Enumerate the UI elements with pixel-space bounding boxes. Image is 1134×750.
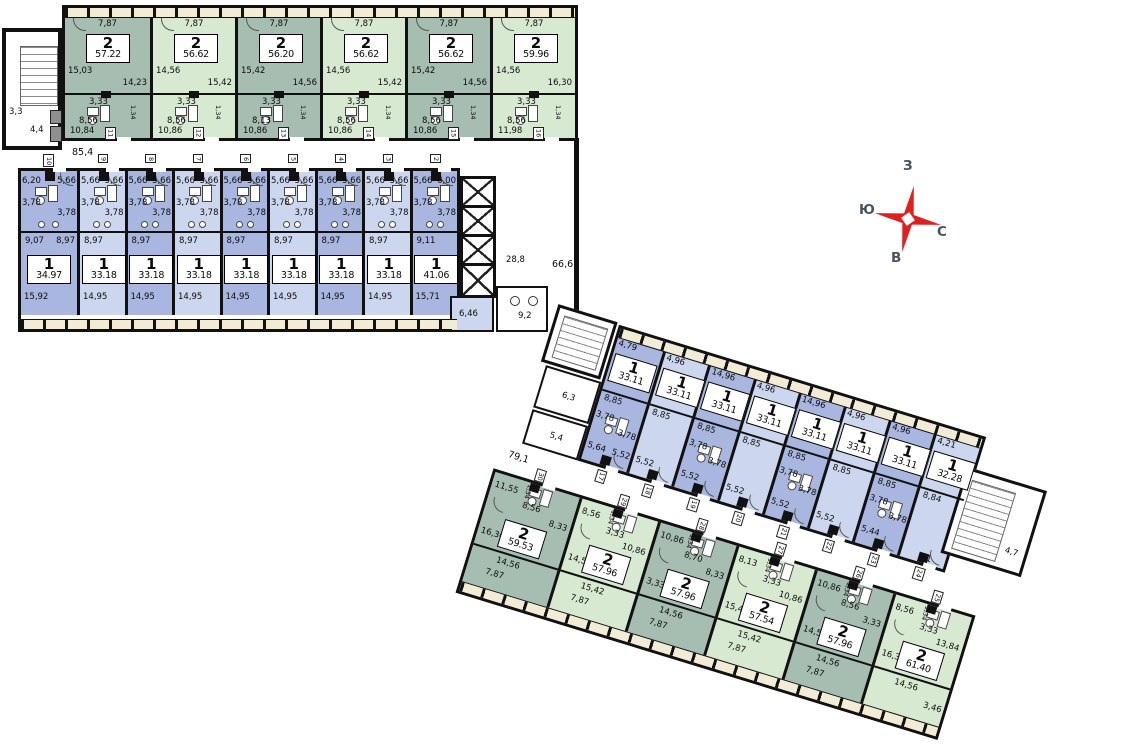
dim-label: 8,97 [132, 237, 151, 246]
apartment-number-tag: 28 [695, 517, 709, 533]
dim-label: 15,42 [241, 67, 265, 76]
apartment-unit: 95,665,663,783,788,97133.1814,95 [77, 171, 125, 315]
door-gap [438, 167, 451, 172]
elevator-shafts [460, 176, 496, 298]
apartment-unit: 7,87259.9614,5616,303,331,348,5611,9816 [490, 17, 575, 138]
dim-label: 10,86 [328, 127, 352, 136]
window-strip [65, 8, 575, 18]
dim-label: 15,92 [24, 293, 48, 302]
door-gap [201, 167, 214, 172]
dim-label: 14,56 [293, 79, 317, 88]
dim-label: 7,87 [804, 666, 825, 680]
dim-label: 5,66 [129, 177, 148, 186]
dim-label: 10,86 [243, 127, 267, 136]
dim-label: 14,56 [156, 67, 180, 76]
dim-label: 11,98 [498, 127, 522, 136]
elevator-icon [463, 266, 493, 295]
dim-label: 14,56 [893, 678, 919, 693]
tub-icon [392, 185, 402, 202]
chute-block [50, 126, 62, 142]
dim-label: 5,66 [105, 177, 124, 186]
wc-dim-label: 1,34 [470, 105, 477, 119]
door-gap [296, 167, 309, 172]
dim-label: 5,66 [152, 177, 171, 186]
room-count-label: 2 [515, 36, 557, 50]
sink-icon [427, 187, 439, 196]
corridor-area-label: 85,4 [72, 148, 93, 158]
room-count-label: 1 [28, 257, 70, 271]
apartment-number-tag: 15 [448, 127, 459, 140]
column [342, 221, 349, 228]
sink-icon [515, 107, 527, 116]
apartment-number-tag: 19 [686, 497, 700, 513]
dim-label: 7,87 [153, 20, 235, 29]
corridor-diag-label: 79,1 [507, 450, 530, 465]
apartment-unit: 55,665,663,783,788,97133.1814,95 [267, 171, 315, 315]
hall-area-label: 66,6 [552, 260, 573, 270]
dim-label: 11,55 [494, 481, 520, 496]
door-gap [106, 167, 119, 172]
column [510, 296, 520, 306]
interior-wall [21, 231, 77, 233]
dim-label: 5,66 [366, 177, 385, 186]
dim-label: 14,56 [658, 606, 684, 621]
apartment-area-box: 141.06 [414, 255, 458, 284]
apartment-number-tag: 10 [43, 154, 54, 167]
area-value-label: 57.22 [87, 50, 129, 60]
dim-label: 3,33 [89, 98, 108, 107]
apartment-number-tag: 3 [383, 154, 394, 163]
dim-label: 3,33 [861, 616, 882, 630]
column [247, 221, 254, 228]
apartment-number-tag: 11 [105, 127, 116, 140]
dim-label: 3,33 [517, 98, 536, 107]
stair-room-label: 4,7 [1004, 547, 1019, 559]
dim-label: 8,56 [337, 117, 356, 126]
apartment-number-tag: 30 [533, 468, 547, 484]
dim-label: 8,56 [167, 117, 186, 126]
door-arc-icon [656, 547, 672, 563]
apartment-number-tag: 29 [617, 494, 631, 510]
column [294, 221, 301, 228]
tub-icon [188, 105, 198, 122]
apartment-area-box: 133.18 [367, 255, 411, 284]
area-value-label: 33.18 [83, 271, 125, 281]
stairwell-left: 3,3 4,4 [2, 28, 62, 150]
dim-label: 5,52 [634, 456, 655, 470]
dim-label: 3,78 [778, 466, 799, 480]
dim-label: 8,56 [422, 117, 441, 126]
apartment-number-tag: 12 [193, 127, 204, 140]
apartment-unit: 45,665,663,783,788,97133.1814,95 [315, 171, 363, 315]
wc-dim-label: 1,34 [300, 105, 307, 119]
elevator-icon [463, 237, 493, 266]
apartment-number-tag: 7 [193, 154, 204, 163]
sink-icon [87, 107, 99, 116]
chute-block [50, 110, 62, 124]
area-value-label: 56.20 [260, 50, 302, 60]
dim-label: 5,66 [390, 177, 409, 186]
tub-icon [443, 105, 453, 122]
apartment-number-tag: 17 [594, 469, 608, 485]
sink-icon [332, 187, 344, 196]
apartment-area-box: 133.11 [745, 395, 796, 436]
apartment-number-tag: 5 [288, 154, 299, 163]
lobby-area-label: 6,46 [459, 310, 478, 319]
dim-label: 15,71 [416, 293, 440, 302]
dim-label: 8,13 [737, 555, 758, 569]
dim-label: 3,33 [604, 527, 625, 541]
area-value-label: 33.18 [130, 271, 172, 281]
room-count-label: 1 [368, 257, 410, 271]
entry-area-label: 9,2 [518, 312, 532, 321]
sink-icon [142, 187, 154, 196]
dim-label: 8,56 [581, 507, 602, 521]
room-count-label: 1 [178, 257, 220, 271]
dim-label: 14,56 [496, 67, 520, 76]
tub-icon [358, 105, 368, 122]
room-count-label: 2 [260, 36, 302, 50]
dim-label: 6,00 [437, 177, 456, 186]
dim-label: 8,97 [274, 237, 293, 246]
apartment-number-tag: 21 [776, 524, 790, 540]
dim-label: 10,84 [70, 127, 94, 136]
dim-label: 14,56 [815, 654, 841, 669]
dim-label: 14,95 [178, 293, 202, 302]
compass-east: В [891, 250, 901, 266]
sink-icon [237, 187, 249, 196]
dim-label: 15,42 [378, 79, 402, 88]
door-gap [290, 137, 304, 142]
apartment-number-tag: 2 [430, 154, 441, 163]
sink-icon [175, 107, 187, 116]
dim-label: 3,33 [177, 98, 196, 107]
dim-label: 3,78 [366, 199, 385, 208]
dim-label: 3,78 [176, 199, 195, 208]
dim-label: 8,56 [79, 117, 98, 126]
apartment-number-tag: 20 [731, 510, 745, 526]
dim-label: 3,78 [295, 209, 314, 218]
area-value-label: 41.06 [415, 271, 457, 281]
dim-label: 5,52 [815, 511, 836, 525]
door-gap [343, 167, 356, 172]
column [236, 221, 243, 228]
dim-label: 3,33 [918, 623, 939, 637]
dim-label: 8,56 [840, 599, 861, 613]
diagonal-wing: 6,3 5,4 4,79133.118,853,783,785,645,5217… [446, 300, 1091, 750]
interior-wall [223, 231, 268, 233]
dim-label: 3,78 [224, 199, 243, 208]
room-count-label: 1 [415, 257, 457, 271]
column [93, 221, 100, 228]
dim-label: 10,86 [816, 579, 842, 594]
dim-label: 3,33 [262, 98, 281, 107]
apartment-number-tag: 24 [912, 566, 926, 582]
wall [574, 138, 579, 318]
column [38, 221, 45, 228]
dim-label: 3,78 [797, 484, 818, 498]
compass-west: З [903, 158, 913, 174]
apartment-area-box: 133.11 [700, 381, 751, 422]
dim-label: 3,78 [887, 512, 908, 526]
dim-label: 5,66 [247, 177, 266, 186]
dim-label: 5,52 [724, 483, 745, 497]
apartment-area-box: 133.18 [224, 255, 268, 284]
dim-label: 15,03 [68, 67, 92, 76]
apartment-unit: 7,87256.6215,4214,563,331,348,5610,8615 [405, 17, 490, 138]
interior-wall [175, 231, 220, 233]
apartment-number-tag: 25 [930, 589, 944, 605]
room-count-label: 2 [345, 36, 387, 50]
dim-label: 5,66 [57, 177, 76, 186]
compass-rose: З Ю С В [845, 150, 975, 280]
dim-label: 8,56 [894, 603, 915, 617]
dim-label: 3,78 [688, 439, 709, 453]
tub-icon [297, 185, 307, 202]
sink-icon [430, 107, 442, 116]
area-value-label: 33.18 [225, 271, 267, 281]
dim-label: 8,97 [369, 237, 388, 246]
wing-blue-main: 106,205,663,783,789,078,97134.9715,9295,… [18, 168, 460, 332]
stair-flight [551, 315, 608, 371]
apartment-area-box: 133.18 [129, 255, 173, 284]
door-gap [117, 137, 131, 142]
apartment-number-tag: 13 [278, 127, 289, 140]
column [378, 221, 385, 228]
apartment-area-box: 133.11 [836, 423, 887, 464]
dim-label: 5,44 [860, 525, 881, 539]
interior-wall [365, 231, 410, 233]
door-gap [53, 167, 66, 172]
dim-label: 3,78 [414, 199, 433, 208]
apartment-area-box: 133.18 [82, 255, 126, 284]
sink-icon [94, 187, 106, 196]
apartment-area-box: 257.22 [86, 34, 130, 63]
wall-pier [45, 171, 55, 181]
dim-label: 14,95 [273, 293, 297, 302]
dim-label: 5,66 [81, 177, 100, 186]
dim-label: 9,07 [25, 237, 44, 246]
wc-dim-label: 1,34 [555, 105, 562, 119]
dim-label: 3,78 [200, 209, 219, 218]
room-area-label: 6,3 [561, 391, 576, 403]
dim-label: 7,87 [238, 20, 320, 29]
area-value-label: 33.18 [273, 271, 315, 281]
interior-wall [80, 231, 125, 233]
dim-label: 3,78 [152, 209, 171, 218]
apartment-number-tag: 22 [821, 538, 835, 554]
column [389, 221, 396, 228]
apartment-area-box: 133.11 [607, 353, 658, 394]
dim-label: 3,78 [247, 209, 266, 218]
dim-label: 8,70 [683, 551, 704, 565]
door-gap [460, 137, 474, 142]
window-strip [21, 319, 457, 329]
sink-icon [35, 187, 47, 196]
dim-label: 5,66 [319, 177, 338, 186]
apartment-area-box: 133.11 [655, 368, 706, 409]
dim-label: 14,56 [463, 79, 487, 88]
dim-label: 14,95 [368, 293, 392, 302]
column [283, 221, 290, 228]
apartment-area-box: 256.62 [174, 34, 218, 63]
compass-south: Ю [859, 202, 875, 218]
dim-label: 14,95 [321, 293, 345, 302]
dim-label: 3,78 [595, 410, 616, 424]
area-value-label: 56.62 [345, 50, 387, 60]
door-gap [205, 137, 219, 142]
entry-dim: 4,4 [30, 126, 44, 135]
room-count-label: 2 [175, 36, 217, 50]
dim-label: 15,42 [208, 79, 232, 88]
dim-label: 5,66 [271, 177, 290, 186]
dim-label: 3,33 [432, 98, 451, 107]
apartment-area-box: 133.18 [319, 255, 363, 284]
dim-label: 3,78 [81, 199, 100, 208]
tub-icon [528, 105, 538, 122]
apartment-unit: 85,665,663,783,788,97133.1814,95 [125, 171, 173, 315]
tub-icon [440, 185, 450, 202]
tub-icon [107, 185, 117, 202]
apartment-area-box: 133.11 [881, 437, 932, 478]
apartment-unit: 7,87256.6214,5615,423,331,348,5610,8612 [150, 17, 235, 138]
tub-icon [273, 105, 283, 122]
tub-icon [202, 185, 212, 202]
dim-label: 9,11 [417, 237, 436, 246]
dim-label: 8,97 [84, 237, 103, 246]
dim-label: 3,78 [319, 199, 338, 208]
dim-label: 10,86 [659, 531, 685, 546]
apartment-number-tag: 9 [98, 154, 109, 163]
elevator-icon [463, 179, 493, 208]
compass-north: С [937, 224, 947, 240]
door-arc-icon [813, 595, 829, 611]
tub-icon [100, 105, 110, 122]
dim-label: 14,56 [495, 556, 521, 571]
column [152, 221, 159, 228]
dim-label: 7,87 [648, 618, 669, 632]
tub-icon [250, 185, 260, 202]
dim-label: 3,78 [342, 209, 361, 218]
apartment-number-tag: 26 [852, 565, 866, 581]
apartment-area-box: 133.18 [272, 255, 316, 284]
sink-icon [189, 187, 201, 196]
apartment-area-box: 133.18 [177, 255, 221, 284]
column [528, 296, 538, 306]
dim-label: 7,87 [484, 568, 505, 582]
dim-label: 3,46 [922, 701, 943, 715]
dim-label: 14,95 [226, 293, 250, 302]
interior-wall [128, 231, 173, 233]
apartment-number-tag: 14 [363, 127, 374, 140]
dim-label: 6,20 [22, 177, 41, 186]
room-count-label: 1 [273, 257, 315, 271]
room-count-label: 1 [225, 257, 267, 271]
column [52, 221, 59, 228]
dim-label: 8,97 [322, 237, 341, 246]
elevator-icon [463, 208, 493, 237]
apartment-area-box: 256.62 [429, 34, 473, 63]
dim-label: 15,42 [579, 582, 605, 597]
dim-label: 14,95 [83, 293, 107, 302]
dim-label: 3,33 [347, 98, 366, 107]
dim-label: 8,13 [252, 117, 271, 126]
column [199, 221, 206, 228]
core-corridor-label: 28,8 [506, 256, 525, 265]
apartment-number-tag: 18 [641, 483, 655, 499]
floor-plan: 3,3 4,4 7,87257.2215,0314,233,331,348,56… [0, 0, 1134, 750]
area-value-label: 33.18 [320, 271, 362, 281]
dim-label: 7,87 [323, 20, 405, 29]
apartment-unit: 7,87256.6214,5615,423,331,348,5610,8614 [320, 17, 405, 138]
apartment-unit: 25,666,003,783,789,11141.0615,71 [410, 171, 458, 315]
tub-icon [155, 185, 165, 202]
dim-label: 3,78 [57, 209, 76, 218]
apartment-unit: 65,665,663,783,788,97133.1814,95 [220, 171, 268, 315]
wc-dim-label: 1,34 [385, 105, 392, 119]
sink-icon [284, 187, 296, 196]
column [331, 221, 338, 228]
dim-label: 14,23 [123, 79, 147, 88]
room-area-label: 5,4 [548, 431, 563, 443]
door-gap [545, 137, 559, 142]
apartment-unit: 7,87257.2215,0314,233,331,348,5610,8411 [65, 17, 150, 138]
dim-label: 3,33 [761, 575, 782, 589]
area-value-label: 34.97 [28, 271, 70, 281]
dim-label: 7,87 [726, 642, 747, 656]
dim-label: 3,78 [22, 199, 41, 208]
wc-dim-label: 1,34 [130, 105, 137, 119]
apartment-unit: 75,665,663,783,788,97133.1814,95 [172, 171, 220, 315]
area-value-label: 33.18 [178, 271, 220, 281]
dim-label: 3,78 [105, 209, 124, 218]
dim-label: 3,78 [868, 494, 889, 508]
apartment-number-tag: 23 [867, 552, 881, 568]
apartment-unit: 106,205,663,783,789,078,97134.9715,92 [21, 171, 77, 315]
apartment-area-box: 259.96 [514, 34, 558, 63]
dim-label: 16,30 [548, 79, 572, 88]
dim-label: 5,66 [414, 177, 433, 186]
apartment-unit: 35,665,663,783,788,97133.1814,95 [362, 171, 410, 315]
area-value-label: 56.62 [430, 50, 472, 60]
apartment-area-box: 132.28 [926, 450, 977, 491]
door-gap [391, 167, 404, 172]
apartment-number-tag: 16 [533, 127, 544, 140]
room-count-label: 2 [430, 36, 472, 50]
dim-label: 8,33 [547, 520, 568, 534]
interior-wall [413, 231, 458, 233]
door-gap [375, 137, 389, 142]
door-arc-icon [891, 619, 907, 635]
dim-label: 14,95 [131, 293, 155, 302]
dim-label: 10,86 [158, 127, 182, 136]
dim-label: 7,87 [408, 20, 490, 29]
dim-label: 8,97 [179, 237, 198, 246]
door-arc-icon [490, 497, 506, 513]
apartment-number-tag: 6 [240, 154, 251, 163]
dim-label: 3,78 [706, 457, 727, 471]
apartment-area-box: 256.62 [344, 34, 388, 63]
room-count-label: 1 [130, 257, 172, 271]
dim-label: 5,66 [200, 177, 219, 186]
wc-dim-label: 1,34 [215, 105, 222, 119]
door-gap [248, 167, 261, 172]
column [141, 221, 148, 228]
column [426, 221, 433, 228]
column [104, 221, 111, 228]
wing-green-top: 7,87257.2215,0314,233,331,348,5610,84117… [62, 5, 578, 141]
dim-label: 5,52 [770, 497, 791, 511]
